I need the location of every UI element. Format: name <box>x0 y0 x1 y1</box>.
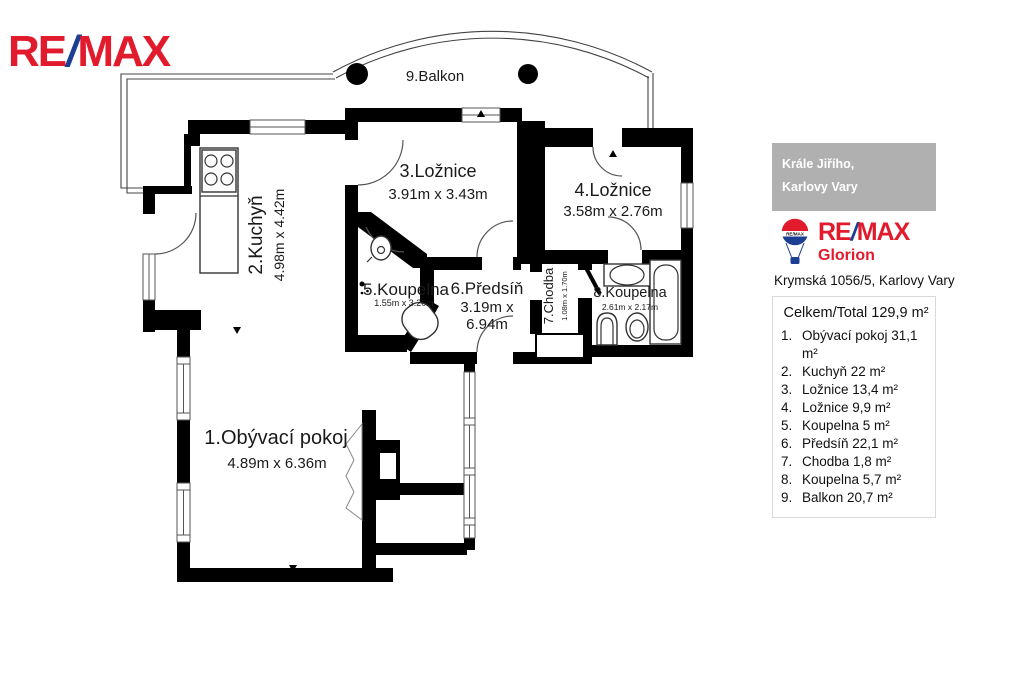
door-arc-bedroom4-top <box>593 147 622 176</box>
room-area-item: 4.Ložnice 9,9 m² <box>781 399 931 417</box>
label-hall: 6.Předsíň <box>451 279 524 298</box>
door-arc-bedroom3-top <box>358 140 403 185</box>
stove-icon <box>202 150 236 192</box>
label-living-room: 1.Obývací pokoj <box>204 427 347 449</box>
location-line2: Karlovy Vary <box>782 176 926 199</box>
property-address: Krymská 1056/5, Karlovy Vary <box>772 269 936 296</box>
label-bathroom8-dims: 2.61m x 2.17m <box>602 302 658 312</box>
label-corridor: 7.Chodba <box>541 267 556 324</box>
room-area-item: 6.Předsíň 22,1 m² <box>781 435 931 453</box>
door-arc-bedroom3-bottom <box>477 221 513 257</box>
window <box>143 254 155 300</box>
door-arc-kitchen <box>155 213 196 254</box>
label-bathroom5-dims: 1.55m x 3.20m <box>374 298 434 308</box>
room-area-item: 1.Obývací pokoj 31,1 m² <box>781 327 931 363</box>
agency-remax-wordmark: RE/MAX <box>818 220 909 245</box>
label-bedroom4: 4.Ložnice <box>574 180 651 200</box>
agency-logo: RE/MAX RE/MAX Glorion <box>772 211 936 269</box>
label-bedroom3: 3.Ložnice <box>399 161 476 181</box>
window <box>681 183 693 228</box>
total-area: Celkem/Total 129,9 m² <box>781 305 931 321</box>
location-header: Krále Jiřího, Karlovy Vary <box>772 143 936 211</box>
room-area-item: 7.Chodba 1,8 m² <box>781 453 931 471</box>
window <box>250 120 305 134</box>
balcony-column <box>518 64 538 84</box>
remax-balloon-icon: RE/MAX <box>778 217 812 267</box>
label-hall-dims2: 6.94m <box>466 316 508 333</box>
label-bathroom8: 8.Koupelna <box>593 285 667 301</box>
floorplan-page: RE/MAX <box>0 0 1024 683</box>
room-area-item: 8.Koupelna 5,7 m² <box>781 471 931 489</box>
label-bathroom5: 5.Koupelna <box>363 280 450 299</box>
label-kitchen-dims: 4.98m x 4.42m <box>271 189 287 282</box>
window <box>464 372 475 538</box>
label-balcony: 9.Balkon <box>406 68 464 85</box>
toilet-icon-wc <box>367 236 391 262</box>
room-area-item: 2.Kuchyň 22 m² <box>781 363 931 381</box>
window <box>177 357 190 420</box>
window <box>177 483 190 542</box>
wardrobe <box>536 334 584 358</box>
toilet-icon-bath8 <box>626 313 648 341</box>
room-area-item: 9.Balkon 20,7 m² <box>781 489 931 507</box>
door-arc-bedroom4-bottom <box>608 217 641 250</box>
label-kitchen: 2.Kuchyň <box>246 195 267 274</box>
label-bedroom3-dims: 3.91m x 3.43m <box>388 186 487 203</box>
agency-name: Glorion <box>818 247 909 265</box>
room-area-item: 5.Koupelna 5 m² <box>781 417 931 435</box>
location-line1: Krále Jiřího, <box>782 153 926 176</box>
info-panel: Krále Jiřího, Karlovy Vary RE/MAX RE/MA <box>772 143 936 518</box>
label-bedroom4-dims: 3.58m x 2.76m <box>563 203 662 220</box>
agency-max: MAX <box>857 218 910 246</box>
label-corridor-dims: 1.08m x 1.70m <box>560 271 569 321</box>
room-area-item: 3.Ložnice 13,4 m² <box>781 381 931 399</box>
room-area-list: Celkem/Total 129,9 m² 1.Obývací pokoj 31… <box>772 296 936 518</box>
label-hall-dims1: 3.19m x <box>460 299 514 316</box>
sink-icon-bath8 <box>604 264 650 286</box>
balcony-column <box>346 63 368 85</box>
agency-re: RE <box>818 218 851 246</box>
label-living-room-dims: 4.89m x 6.36m <box>227 455 326 472</box>
balloon-band-text: RE/MAX <box>786 231 805 236</box>
